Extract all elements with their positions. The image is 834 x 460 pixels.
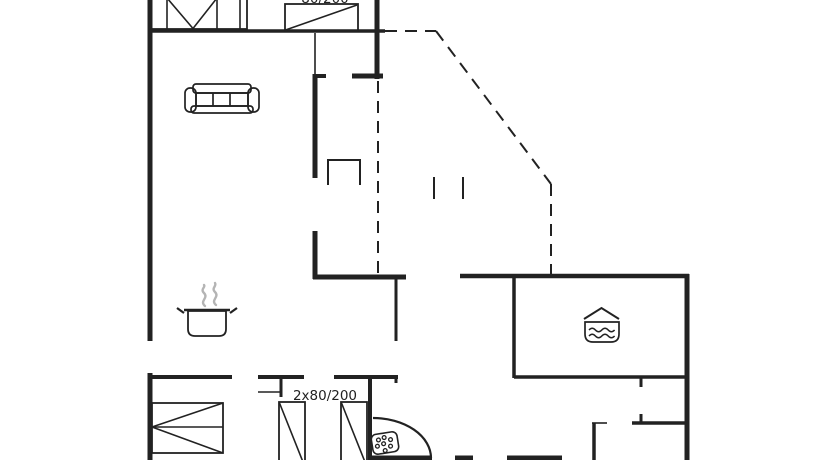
icon-path [585,322,619,342]
icon-line [342,403,366,460]
icon-line [286,5,358,30]
icon-path [589,334,615,338]
icon-line [152,427,223,453]
sofa-icon [185,84,259,113]
icon-line [177,308,184,313]
icon-polyline [167,0,217,29]
icon-polyline [328,160,360,185]
icon-dot [383,448,387,452]
bunk-beds-size-label: 2x80/200 [293,388,357,404]
icon-line [152,403,223,427]
icon-rect [196,93,248,106]
icon-rect [150,0,247,29]
top-bed-size-label: 80/200 [301,0,349,7]
double-bed-icon [152,403,223,453]
cooking-pot-icon [177,283,237,336]
roof-overhang-dashed-line [436,31,551,184]
icon-rect [193,84,251,93]
icon-path [188,311,226,336]
icon-dot [382,435,386,439]
icon-rect [152,403,223,453]
floor-plan-svg: 2x80/200180/20080/200 [0,0,834,460]
single-bed-icon [285,4,358,31]
floor-plan-canvas: 2x80/200180/20080/200 [0,0,834,460]
icon-line [280,403,304,460]
icon-dot [388,437,392,441]
icon-dot [388,444,392,448]
single-bed-icon [279,402,305,460]
spa-tub-icon [584,308,619,342]
icon-rect [191,106,253,113]
icon-dot [381,442,385,446]
wardrobe-icon [150,0,247,29]
icon-path [214,283,217,305]
fireplace-icon [328,160,360,185]
icon-line [230,308,237,313]
icon-dot [375,444,379,448]
single-bed-icon [341,402,367,460]
shower-icon [371,418,431,458]
icon-dot [376,438,380,442]
icon-path [203,285,206,306]
icon-path [589,328,615,332]
icon-polyline [584,308,619,319]
